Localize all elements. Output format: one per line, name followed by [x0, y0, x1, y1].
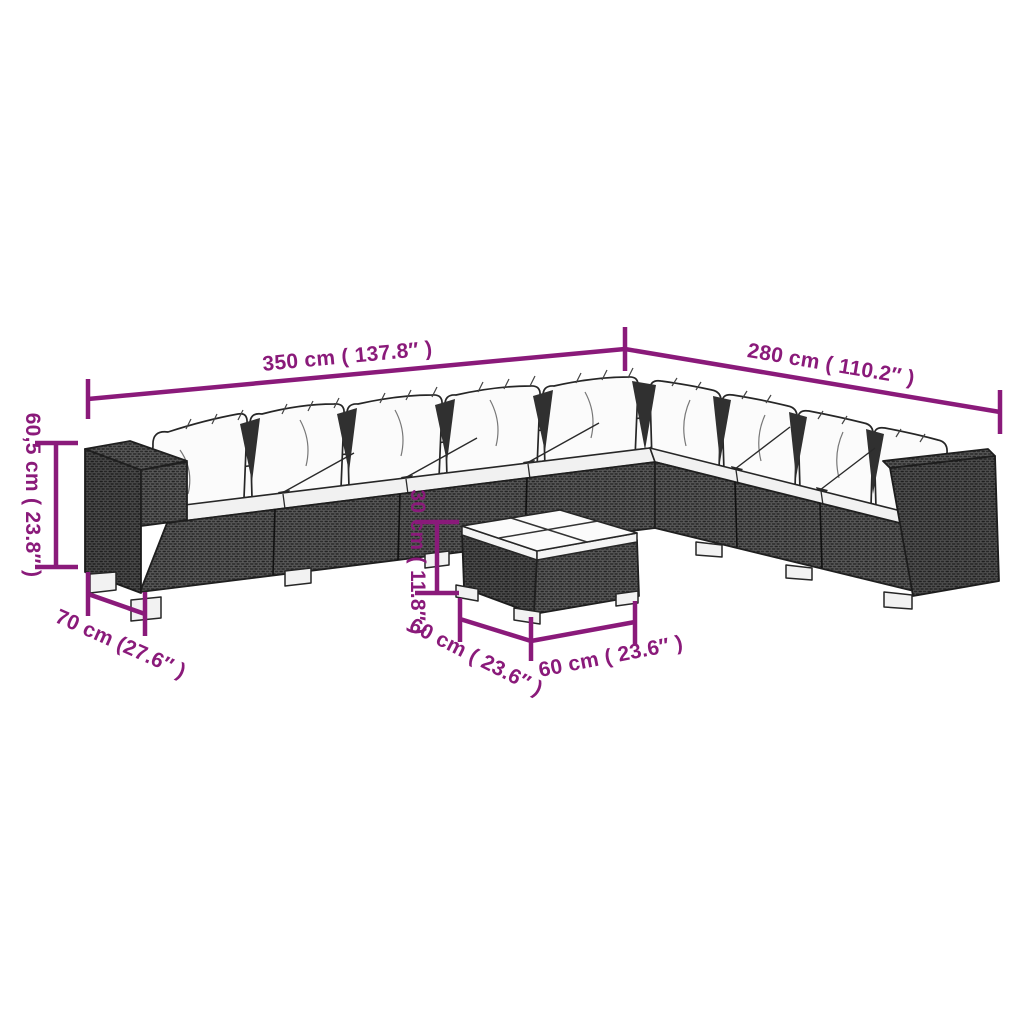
- product-dimension-diagram: 350 cm ( 137.8″ ) 280 cm ( 110.2″ ) 60,5…: [0, 0, 1024, 1024]
- dimension-label-60-front: 60 cm ( 23.6″ ): [405, 614, 546, 701]
- dimension-label-60-5: 60,5 cm ( 23.8″ ): [21, 413, 44, 578]
- dimension-label-30: 30 cm ( 11.8″ ): [406, 489, 429, 634]
- diagram-svg: 350 cm ( 137.8″ ) 280 cm ( 110.2″ ) 60,5…: [0, 0, 1024, 1024]
- coffee-table-illustration: [456, 510, 639, 624]
- dimension-label-70: 70 cm (27.6″ ): [52, 605, 190, 683]
- left-arm-front-face: [141, 462, 187, 526]
- pillow: [347, 395, 442, 488]
- dimension-label-60-side: 60 cm ( 23.6″ ): [537, 631, 685, 682]
